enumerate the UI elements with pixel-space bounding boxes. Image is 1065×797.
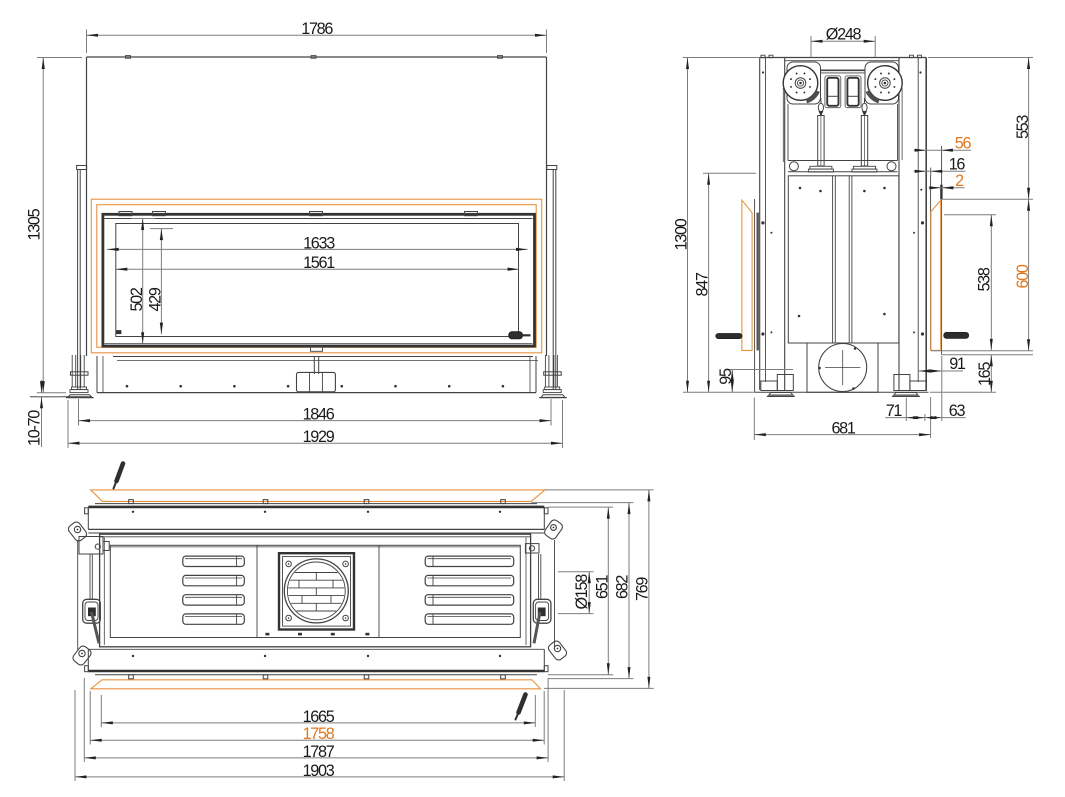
svg-text:Ø158: Ø158: [573, 574, 591, 610]
svg-text:502: 502: [128, 287, 146, 311]
svg-text:Ø248: Ø248: [826, 25, 862, 43]
svg-text:1758: 1758: [303, 725, 335, 743]
svg-text:71: 71: [886, 402, 903, 420]
svg-text:1903: 1903: [303, 762, 335, 780]
svg-text:1633: 1633: [303, 234, 335, 252]
svg-text:1787: 1787: [303, 743, 335, 761]
svg-text:95: 95: [717, 368, 735, 385]
svg-text:682: 682: [614, 575, 632, 599]
svg-text:91: 91: [949, 355, 966, 373]
svg-text:1300: 1300: [672, 218, 690, 250]
svg-text:16: 16: [949, 156, 966, 174]
svg-text:651: 651: [593, 575, 611, 599]
svg-text:681: 681: [831, 420, 855, 438]
svg-text:165: 165: [976, 362, 994, 386]
svg-text:1305: 1305: [25, 208, 43, 240]
svg-text:1929: 1929: [303, 428, 335, 446]
svg-text:2: 2: [955, 172, 964, 190]
svg-text:1665: 1665: [303, 708, 335, 726]
svg-text:63: 63: [949, 402, 966, 420]
svg-text:600: 600: [1014, 264, 1032, 288]
svg-text:10-70: 10-70: [25, 410, 43, 446]
svg-text:429: 429: [147, 287, 165, 311]
svg-text:1786: 1786: [301, 20, 333, 38]
svg-text:1561: 1561: [303, 254, 335, 272]
svg-text:1846: 1846: [303, 406, 335, 424]
svg-text:769: 769: [634, 577, 652, 601]
svg-text:56: 56: [955, 134, 972, 152]
svg-text:553: 553: [1014, 115, 1032, 139]
svg-text:847: 847: [693, 272, 711, 296]
svg-text:538: 538: [976, 267, 994, 291]
